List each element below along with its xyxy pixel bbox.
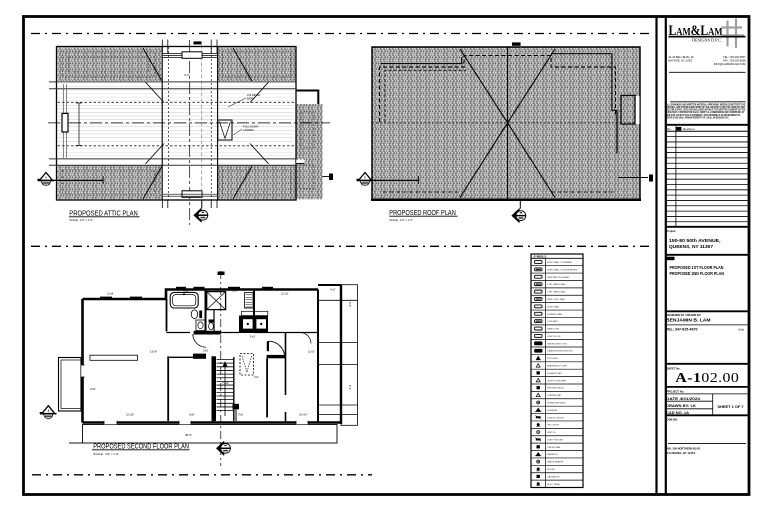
svg-text:PULL DOWN: PULL DOWN [243, 125, 258, 129]
svg-text:3'x4': 3'x4' [254, 376, 259, 379]
svg-text:TEL: 347-625-4970: TEL: 347-625-4970 [666, 327, 698, 331]
svg-text:SMOKE DETECTOR: SMOKE DETECTOR [547, 343, 567, 345]
svg-text:11'x16': 11'x16' [126, 413, 135, 417]
svg-text:6'-2": 6'-2" [348, 385, 352, 390]
svg-text:48'-0": 48'-0" [185, 433, 192, 437]
svg-text:LADDER: LADDER [243, 128, 254, 132]
svg-text:CEILING FAN: CEILING FAN [547, 446, 560, 449]
svg-text:A-102.00: A-102.00 [675, 371, 739, 386]
svg-text:SHEET 1 OF 7: SHEET 1 OF 7 [718, 405, 744, 409]
svg-text:DRAWN BY: LK: DRAWN BY: LK [666, 404, 697, 408]
svg-text:SCALE : 1/4" = 1'-0": SCALE : 1/4" = 1'-0" [93, 452, 119, 456]
svg-text:NEW DOOR: NEW DOOR [547, 329, 559, 331]
svg-text:Project:: Project: [667, 229, 677, 233]
svg-text:EXIST. DOOR: EXIST. DOOR [547, 336, 561, 338]
svg-text:BENJAMIN B. LAM: BENJAMIN B. LAM [666, 318, 711, 323]
svg-text:No.: No. [667, 127, 672, 131]
svg-text:41-40 BELL BLVD, 2F: 41-40 BELL BLVD, 2F [669, 55, 695, 59]
svg-text:RETURN GRILLE: RETURN GRILLE [547, 388, 564, 390]
svg-text:2x8 RIDGE: 2x8 RIDGE [247, 93, 260, 97]
svg-text:FAX: 718-229-0558: FAX: 718-229-0558 [723, 59, 746, 63]
svg-text:BOILER: BOILER [547, 469, 555, 471]
svg-text:BEAM: BEAM [247, 96, 254, 100]
svg-text:Seal: Seal [738, 327, 744, 331]
svg-text:PROPOSED SECOND FLOOR PLAN: PROPOSED SECOND FLOOR PLAN [93, 441, 189, 450]
svg-text:EXIT SIGN: EXIT SIGN [547, 358, 558, 360]
svg-text:EXIST. WALL TO BE REMOVED: EXIST. WALL TO BE REMOVED [547, 268, 578, 271]
svg-text:SPRINKLER HEAD: SPRINKLER HEAD [547, 401, 566, 404]
svg-text:11'x8': 11'x8' [107, 292, 114, 296]
svg-text:FLUSHING, NY 11354: FLUSHING, NY 11354 [667, 451, 695, 455]
svg-text:DOB NO.: DOB NO. [667, 418, 679, 422]
svg-text:LOW WALL: LOW WALL [547, 320, 559, 323]
svg-text:SUPPLY DIFFUSER: SUPPLY DIFFUSER [547, 380, 566, 382]
svg-text:TEL: 718-229-0557: TEL: 718-229-0557 [723, 55, 746, 59]
svg-text:DESIGNED BY / DRAWN BY:: DESIGNED BY / DRAWN BY: [667, 313, 702, 317]
svg-text:7'x5': 7'x5' [183, 289, 189, 293]
svg-text:190-80 50th AVENUE,: 190-80 50th AVENUE, [669, 238, 721, 243]
svg-text:INFO@LAMANDLAM.COM: INFO@LAMANDLAM.COM [714, 62, 746, 66]
svg-text:PROJECT No.: PROJECT No. [667, 389, 685, 393]
svg-text:BAYSIDE, NY 11361: BAYSIDE, NY 11361 [669, 59, 693, 63]
svg-text:RADIATOR: RADIATOR [547, 453, 558, 456]
svg-text:EXIST. WALL TO REMAIN: EXIST. WALL TO REMAIN [547, 261, 572, 264]
svg-text:1 HR. RATED WALL: 1 HR. RATED WALL [547, 283, 567, 286]
svg-text:2'x8': 2'x8' [90, 387, 96, 391]
svg-text:THERMOSTAT: THERMOSTAT [547, 394, 562, 397]
svg-text:5'x8': 5'x8' [189, 413, 195, 417]
svg-text:SCALE : 1/4" = 1'-0": SCALE : 1/4" = 1'-0" [389, 218, 413, 222]
svg-text:11'x11': 11'x11' [281, 292, 289, 296]
svg-text:EXHAUST FAN: EXHAUST FAN [547, 372, 562, 375]
svg-text:GAS METER: GAS METER [547, 475, 560, 478]
svg-text:SWITCH: SWITCH [547, 432, 556, 434]
svg-text:EXIST. WALL: EXIST. WALL [547, 305, 560, 308]
svg-text:2 HR. RATED WALL: 2 HR. RATED WALL [547, 291, 567, 294]
svg-text:13'x8': 13'x8' [150, 350, 157, 354]
svg-text:PROPOSED ATTIC PLAN: PROPOSED ATTIC PLAN [69, 208, 138, 217]
svg-text:CARBON MONOXIDE DET.: CARBON MONOXIDE DET. [547, 350, 573, 353]
svg-text:PROPOSED ROOF PLAN: PROPOSED ROOF PLAN [389, 208, 456, 217]
svg-text:Revision: Revision [683, 127, 695, 131]
svg-text:ELEC. PANEL: ELEC. PANEL [547, 483, 561, 486]
svg-text:4'-6": 4'-6" [184, 73, 190, 77]
svg-text:10'x14': 10'x14' [299, 413, 308, 417]
svg-text:DESIGNS D.P.C.: DESIGNS D.P.C. [692, 37, 722, 42]
svg-text:GFI OUTLET: GFI OUTLET [547, 425, 560, 427]
svg-text:6'x3': 6'x3' [250, 335, 256, 339]
svg-text:9'-6": 9'-6" [348, 302, 352, 307]
svg-text:WATER HEATER: WATER HEATER [547, 461, 564, 464]
svg-text:FURRING WALL: FURRING WALL [547, 313, 563, 316]
svg-text:DUPLEX OUTLET: DUPLEX OUTLET [547, 417, 565, 419]
svg-text:NEW CONC. WALL: NEW CONC. WALL [547, 298, 566, 301]
svg-text:LIGHT FIXTURE: LIGHT FIXTURE [547, 439, 563, 441]
svg-text:QUEENS, NY 11357: QUEENS, NY 11357 [669, 244, 714, 249]
svg-text:5'x8': 5'x8' [232, 289, 238, 293]
svg-text:SCALE : 1/4" = 1'-0": SCALE : 1/4" = 1'-0" [69, 218, 93, 222]
svg-text:7'x12': 7'x12' [222, 381, 229, 385]
svg-text:NEW PARTITION WALL: NEW PARTITION WALL [547, 276, 570, 279]
svg-text:SHEET No.: SHEET No. [667, 366, 681, 370]
svg-text:DATE 4/01/2024: DATE 4/01/2024 [666, 397, 700, 401]
svg-text:4'x3': 4'x3' [330, 288, 336, 292]
svg-text:11'x3': 11'x3' [308, 350, 315, 354]
svg-text:3'x5': 3'x5' [203, 349, 209, 353]
svg-text:EMERGENCY LIGHT: EMERGENCY LIGHT [547, 366, 568, 368]
svg-text:PROPOSED 2ND FLOOR PLAN: PROPOSED 2ND FLOOR PLAN [670, 271, 725, 276]
svg-text:SERVICE AND SHALL REMAIN PROPE: SERVICE AND SHALL REMAIN PROPERTY OF LAM… [666, 115, 729, 119]
svg-text:HOSE BIB: HOSE BIB [547, 410, 557, 412]
svg-text:PROPOSED 1ST FLOOR PLAN: PROPOSED 1ST FLOOR PLAN [670, 265, 724, 270]
svg-text:3'x5': 3'x5' [238, 413, 244, 417]
